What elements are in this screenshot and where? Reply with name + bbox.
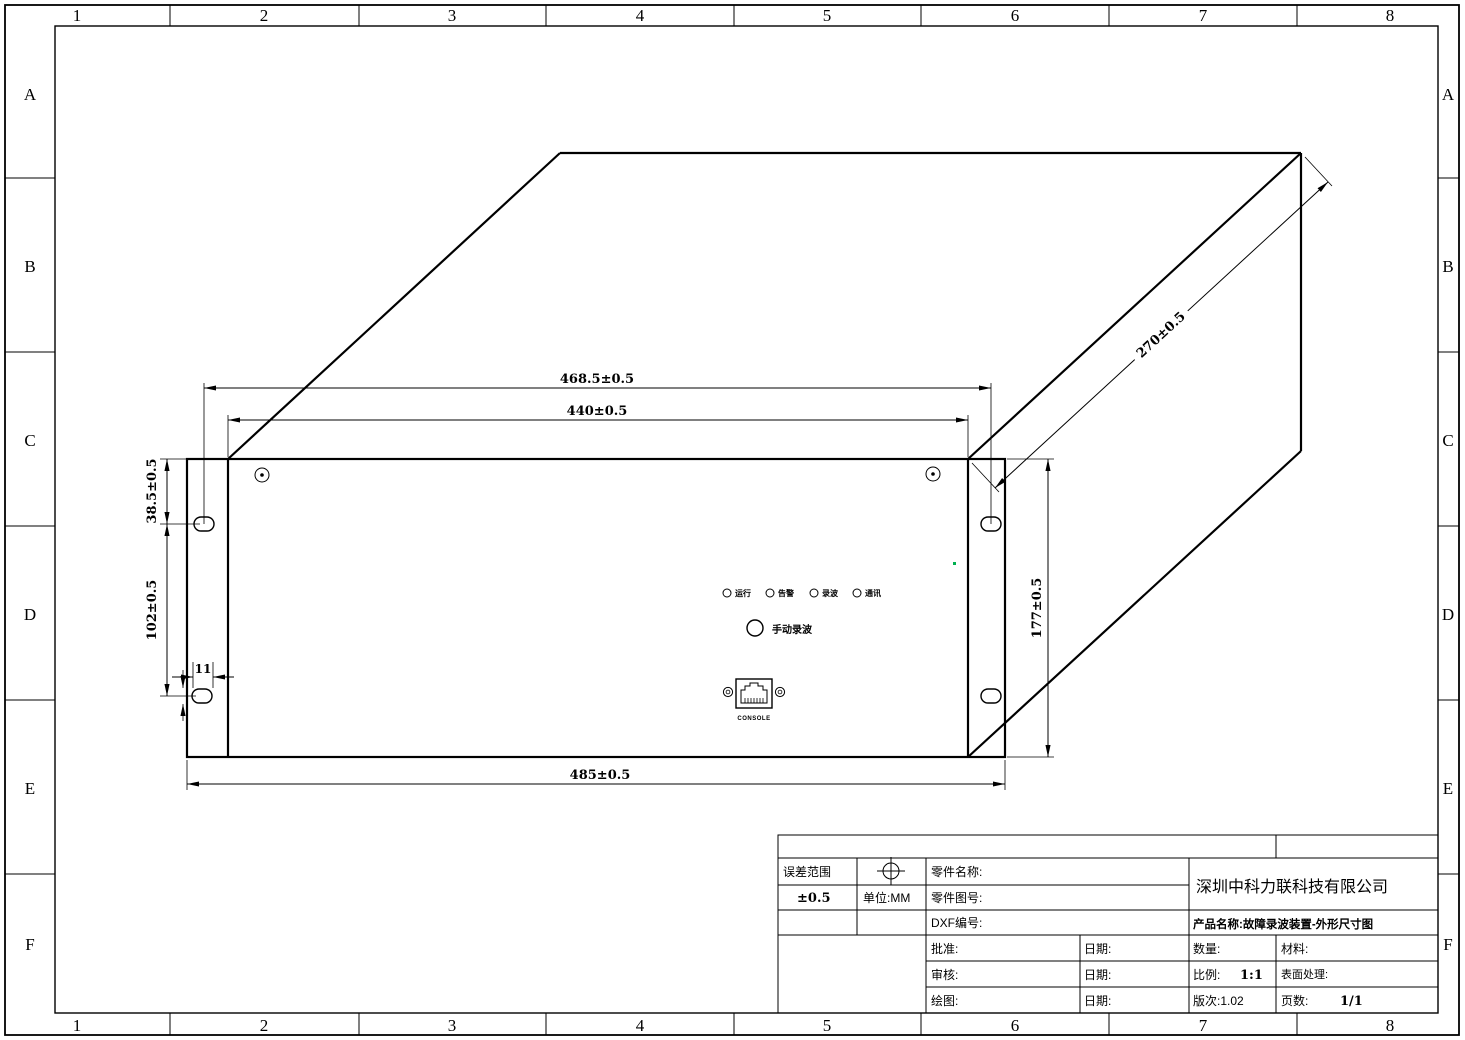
manual-record-button: 手动录波	[747, 620, 813, 636]
grid-row-label: D	[24, 605, 36, 624]
dim-label: 102±0.5	[145, 580, 160, 641]
date-label: 日期:	[1084, 994, 1111, 1008]
grid-col-label: 7	[1199, 6, 1208, 25]
grid-col-label: 1	[73, 6, 82, 25]
product-name: 产品名称:故障录波装置-外形尺寸图	[1193, 917, 1373, 931]
pages-value: 1/1	[1340, 994, 1363, 1009]
grid-row-label: C	[1442, 431, 1453, 450]
led-icon	[723, 589, 731, 597]
grid-row-label: F	[25, 935, 34, 954]
material-label: 材料:	[1281, 942, 1308, 956]
grid-col-label: 5	[823, 1016, 832, 1035]
scale-label: 比例:	[1193, 968, 1220, 982]
draw-label: 绘图:	[931, 993, 958, 1008]
grid-col-label: 4	[636, 6, 645, 25]
scale-value: 1:1	[1240, 968, 1263, 983]
dim-total-width: 485±0.5	[187, 760, 1005, 790]
dim-slot-to-slot: 102±0.5	[145, 524, 196, 696]
grid-col-label: 8	[1386, 6, 1395, 25]
dim-body-width: 440±0.5	[228, 404, 968, 457]
slot-bottom-right	[981, 689, 1001, 703]
dim-label: 440±0.5	[567, 404, 628, 419]
dim-label: 485±0.5	[570, 768, 631, 783]
screw-icon	[723, 687, 732, 696]
dim-label: 468.5±0.5	[560, 372, 634, 387]
cad-drawing-sheet: 1 2 3 4 5 6 7 8 1 2 3 4 5 6 7 8 A B C D …	[0, 0, 1465, 1040]
dim-depth: 270±0.5	[972, 157, 1332, 492]
console-label: CONSOLE	[737, 716, 770, 722]
panel-screw-holes	[255, 467, 940, 482]
dim-panel-height: 177±0.5	[1007, 459, 1054, 757]
grid-col-label: 6	[1011, 6, 1020, 25]
grid-row-label: C	[24, 431, 35, 450]
grid-col-label: 1	[73, 1016, 82, 1035]
grid-col-label: 7	[1199, 1016, 1208, 1035]
company-name: 深圳中科力联科技有限公司	[1196, 878, 1388, 896]
date-label: 日期:	[1084, 942, 1111, 956]
grid-col-label: 2	[260, 6, 269, 25]
dxf-no-label: DXF编号:	[931, 915, 982, 930]
led-icon	[766, 589, 774, 597]
part-name-label: 零件名称:	[931, 864, 982, 879]
title-block: 误差范围 ±0.5 单位:MM 零件名称: 零件图号: DXF编号: 批准: 审…	[778, 835, 1438, 1013]
grid-row-label: B	[24, 257, 35, 276]
part-no-label: 零件图号:	[931, 891, 982, 905]
unit-label: 单位:MM	[863, 890, 910, 905]
grid-row-label: A	[24, 85, 37, 104]
console-port: CONSOLE	[723, 679, 784, 722]
grid-row-label: E	[1443, 779, 1453, 798]
led-icon	[810, 589, 818, 597]
drawing-canvas: 1 2 3 4 5 6 7 8 1 2 3 4 5 6 7 8 A B C D …	[0, 0, 1465, 1040]
surface-label: 表面处理:	[1281, 967, 1328, 981]
grid-col-label: 8	[1386, 1016, 1395, 1035]
grid-row-label: B	[1442, 257, 1453, 276]
date-label: 日期:	[1084, 968, 1111, 982]
grid-col-label: 5	[823, 6, 832, 25]
dim-label: 177±0.5	[1030, 578, 1045, 639]
position-tolerance-icon	[877, 857, 905, 885]
grid-row-label: E	[25, 779, 35, 798]
approve-label: 批准:	[931, 941, 958, 956]
screw-icon	[775, 687, 784, 696]
grid-row-label: A	[1442, 85, 1455, 104]
grid-col-label: 6	[1011, 1016, 1020, 1035]
pages-label: 页数:	[1281, 993, 1308, 1008]
green-vertex-marker	[953, 562, 956, 565]
tolerance-label: 误差范围	[783, 865, 831, 879]
led-label: 通讯	[865, 588, 881, 598]
grid-row-label: D	[1442, 605, 1454, 624]
front-panel: 运行 告警 录波 通讯 手动录波 C	[187, 459, 1005, 757]
dim-slot-offset: 11	[172, 662, 234, 721]
mounting-slots	[192, 517, 1001, 703]
review-label: 审核:	[931, 967, 958, 982]
led-indicators: 运行 告警 录波 通讯	[723, 588, 881, 598]
dim-label: 11	[195, 662, 212, 676]
grid-col-label: 3	[448, 1016, 457, 1035]
grid-row-label: F	[1443, 935, 1452, 954]
grid-col-label: 3	[448, 6, 457, 25]
rev-label: 版次:1.02	[1193, 994, 1244, 1008]
qty-label: 数量:	[1193, 941, 1220, 956]
frame-column-ticks	[170, 5, 1297, 1035]
dim-label: 38.5±0.5	[145, 458, 160, 523]
record-button-icon	[747, 620, 763, 636]
chassis-3d-outline	[228, 153, 1301, 757]
grid-col-label: 2	[260, 1016, 269, 1035]
led-label: 录波	[822, 588, 839, 598]
led-label: 告警	[778, 588, 794, 598]
record-button-label: 手动录波	[772, 623, 813, 636]
dim-top-to-slot: 38.5±0.5	[145, 458, 200, 524]
led-icon	[853, 589, 861, 597]
frame-row-ticks	[5, 178, 1459, 874]
dim-label: 270±0.5	[1134, 309, 1189, 361]
tolerance-value: ±0.5	[797, 891, 831, 906]
led-label: 运行	[735, 588, 751, 598]
grid-col-label: 4	[636, 1016, 645, 1035]
dim-slot-span-width: 468.5±0.5	[204, 372, 991, 524]
